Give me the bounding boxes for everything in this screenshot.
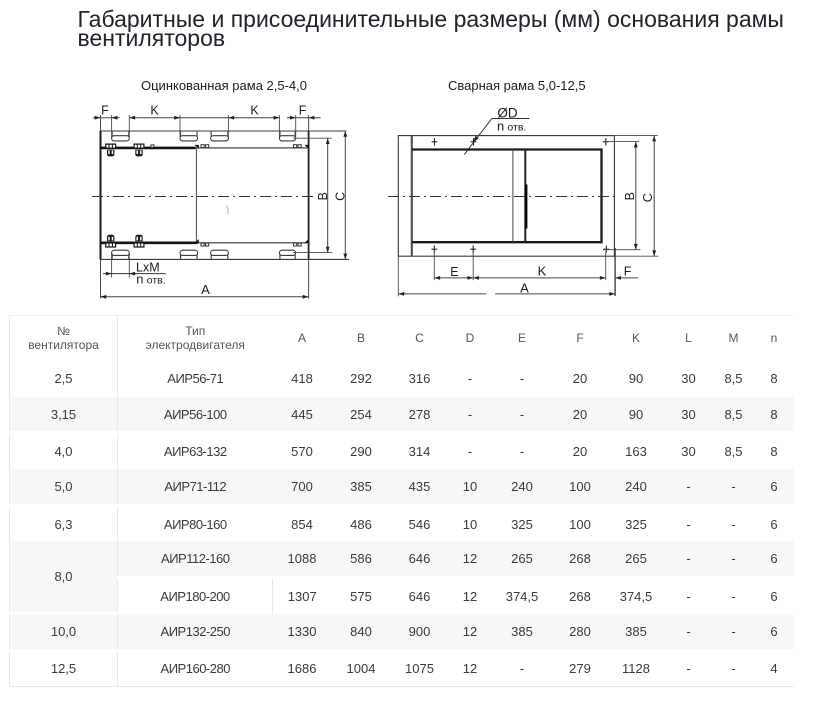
svg-text:nотв.: nотв. [497,119,526,134]
svg-text:B: B [316,192,330,200]
svg-text:K: K [538,264,547,279]
svg-text:A: A [201,282,210,297]
svg-text:E: E [450,265,458,279]
svg-text:C: C [641,193,655,202]
svg-text:F: F [624,265,632,279]
svg-text:K: K [250,104,259,118]
svg-text:K: K [150,104,159,118]
svg-text:A: A [520,281,529,296]
svg-text:B: B [623,192,637,200]
svg-text:F: F [299,104,307,118]
svg-text:C: C [334,192,348,201]
svg-text:nотв.: nотв. [136,272,165,287]
svg-text:F: F [101,104,109,118]
